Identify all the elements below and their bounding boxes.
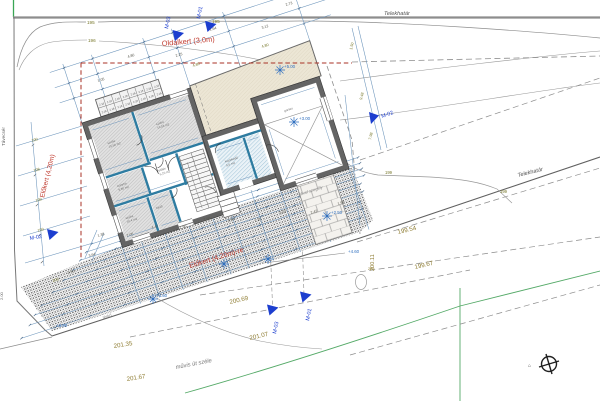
svg-text:+3.00: +3.00 xyxy=(299,116,311,121)
svg-text:195: 195 xyxy=(87,20,95,25)
svg-text:199: 199 xyxy=(385,170,393,175)
svg-text:+4.50: +4.50 xyxy=(156,293,168,298)
svg-text:+3.99: +3.99 xyxy=(56,323,68,328)
svg-text:Telekhatár: Telekhatár xyxy=(384,11,411,17)
svg-text:⌂: ⌂ xyxy=(528,363,531,369)
svg-text:2.00: 2.00 xyxy=(0,291,4,300)
svg-text:196: 196 xyxy=(88,38,96,43)
svg-text:195: 195 xyxy=(212,19,220,24)
svg-text:199: 199 xyxy=(500,189,508,194)
svg-text:+5.00: +5.00 xyxy=(284,64,296,69)
svg-text:Távecsér: Távecsér xyxy=(1,127,6,146)
svg-text:+4.60: +4.60 xyxy=(348,249,360,254)
svg-text:200: 200 xyxy=(368,267,374,271)
svg-text:+2.50: +2.50 xyxy=(331,210,343,215)
